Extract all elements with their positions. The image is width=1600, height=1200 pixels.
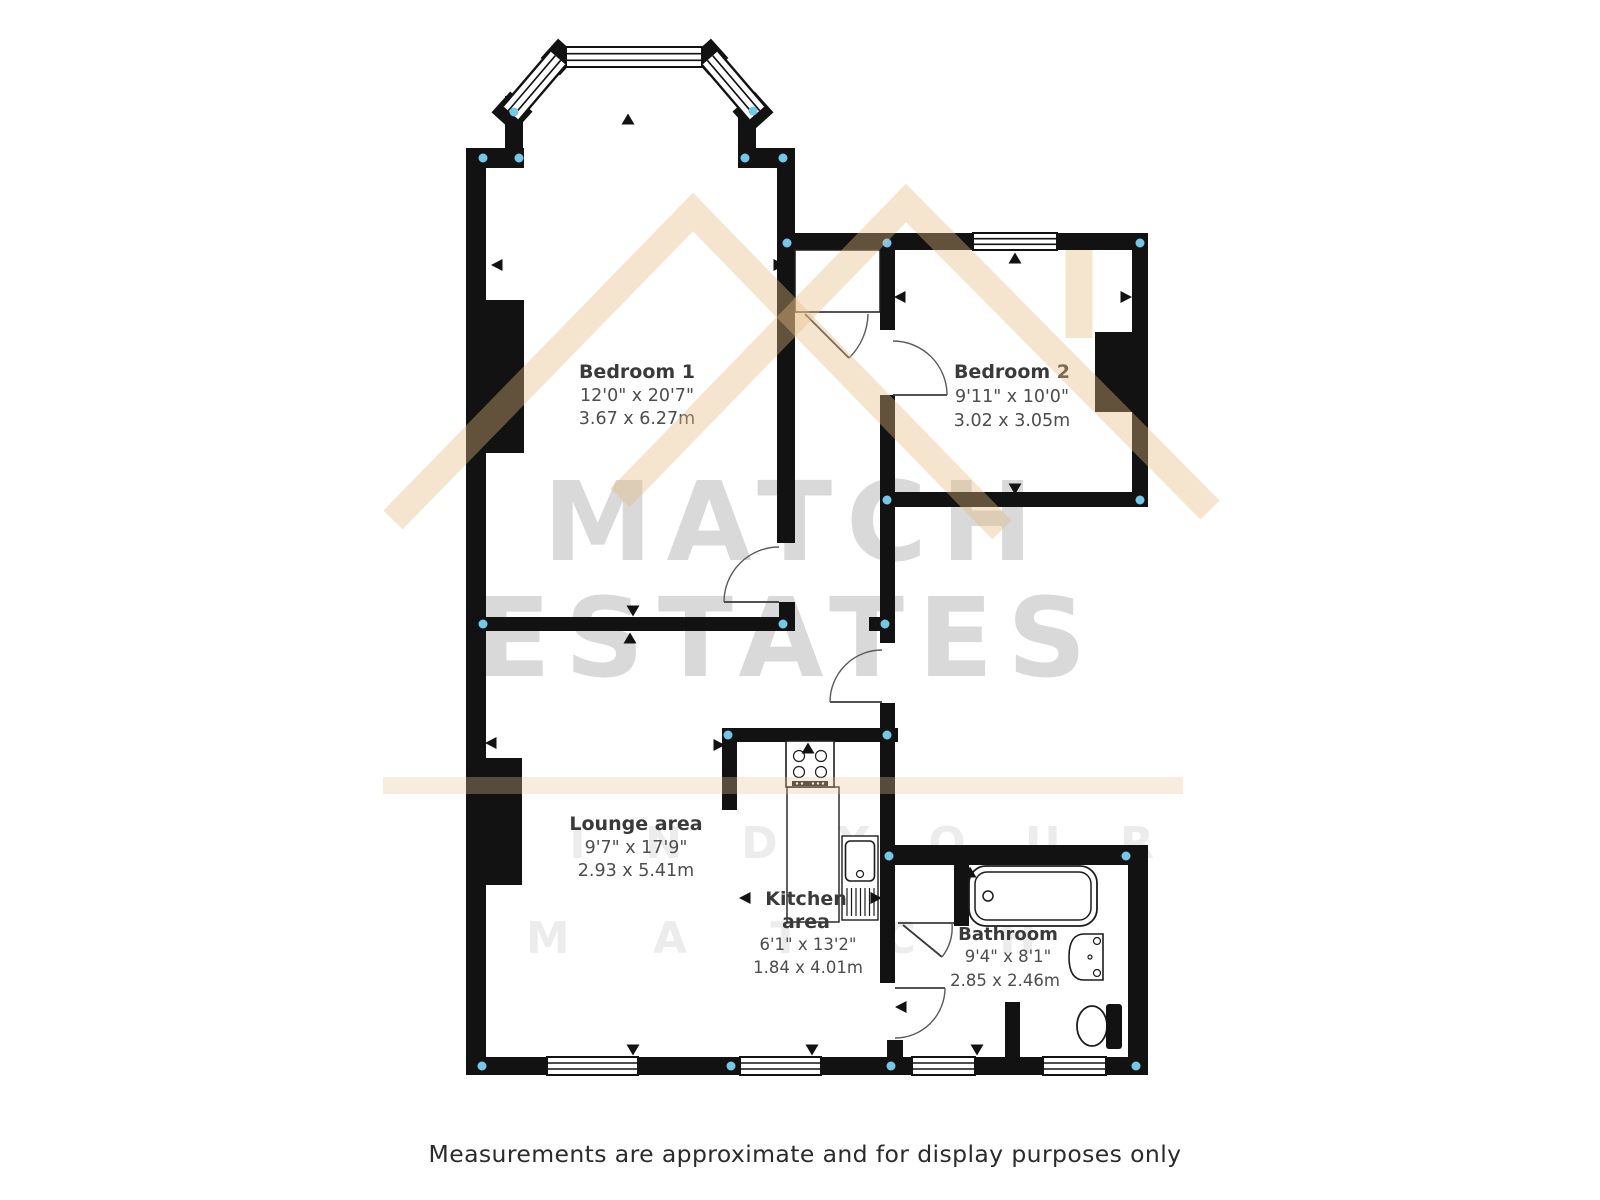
- floorplan-page: MATCH ESTATES F I N D Y O U R M A T C H: [0, 0, 1600, 1200]
- disclaimer-text: Measurements are approximate and for dis…: [429, 1140, 1182, 1168]
- wall-bedroom2-right: [1132, 235, 1148, 507]
- bedroom1-label: Bedroom 1 12'0" x 20'7" 3.67 x 6.27m: [579, 361, 695, 429]
- bay-window: [491, 39, 773, 133]
- door-hall-lobby: [895, 988, 945, 1038]
- window-lounge-1: [547, 1057, 638, 1075]
- kitchen-name-line2: area: [782, 911, 830, 933]
- bathroom-label: Bathroom 9'4" x 8'1" 2.85 x 2.46m: [950, 924, 1060, 990]
- bathtub: [969, 866, 1097, 926]
- wall-lobby-stub: [887, 1040, 903, 1058]
- wall-kitchen-left: [722, 728, 737, 810]
- bathroom-name: Bathroom: [958, 924, 1058, 945]
- wall-bedroom2-bottom: [880, 492, 1148, 507]
- wall-hall-right-upper: [880, 250, 895, 330]
- kitchen-imperial: 6'1" x 13'2": [760, 935, 857, 954]
- wall-bottom-5: [1106, 1057, 1148, 1075]
- lounge-name: Lounge area: [569, 813, 702, 835]
- wall-bathroom-top: [883, 845, 1148, 865]
- window-bay-top: [566, 47, 702, 67]
- door-bedroom2: [893, 341, 947, 395]
- lounge-metric: 2.93 x 5.41m: [578, 861, 694, 881]
- bathroom-imperial: 9'4" x 8'1": [965, 947, 1052, 966]
- bedroom2-label: Bedroom 2 9'11" x 10'0" 3.02 x 3.05m: [954, 361, 1070, 431]
- lounge-imperial: 9'7" x 17'9": [585, 838, 688, 858]
- watermark-band: [383, 777, 1183, 794]
- wall-left: [466, 148, 486, 1075]
- lounge-label: Lounge area 9'7" x 17'9" 2.93 x 5.41m: [569, 813, 702, 881]
- wall-kitchen-top: [722, 728, 898, 742]
- bathroom-metric: 2.85 x 2.46m: [950, 971, 1060, 990]
- wall-toilet-stub: [1005, 1002, 1020, 1058]
- bedroom1-imperial: 12'0" x 20'7": [580, 386, 694, 406]
- floorplan-svg: MATCH ESTATES F I N D Y O U R M A T C H: [0, 0, 1600, 1200]
- window-kitchen-bottom: [912, 1057, 975, 1075]
- wall-hall-right-lower: [880, 703, 895, 983]
- kitchen-sink: [842, 836, 878, 920]
- watermark-brand-line2: ESTATES: [476, 574, 1101, 702]
- window-lounge-2: [740, 1057, 821, 1075]
- wall-bathroom-right: [1128, 845, 1148, 1075]
- bedroom2-metric: 3.02 x 3.05m: [954, 411, 1070, 431]
- window-bathroom-bottom: [1043, 1057, 1106, 1075]
- bathroom-sink: [1069, 934, 1103, 980]
- wall-bottom-3: [821, 1057, 912, 1075]
- window-bedroom2-top: [973, 233, 1057, 250]
- wall-bottom-4: [975, 1057, 1043, 1075]
- toilet: [1077, 1004, 1122, 1049]
- wall-bottom-2: [638, 1057, 740, 1075]
- wall-divider: [466, 617, 795, 631]
- kitchen-name-line1: Kitchen: [765, 888, 847, 910]
- kitchen-metric: 1.84 x 4.01m: [753, 958, 863, 977]
- bedroom1-name: Bedroom 1: [579, 361, 695, 383]
- bedroom2-imperial: 9'11" x 10'0": [955, 387, 1069, 407]
